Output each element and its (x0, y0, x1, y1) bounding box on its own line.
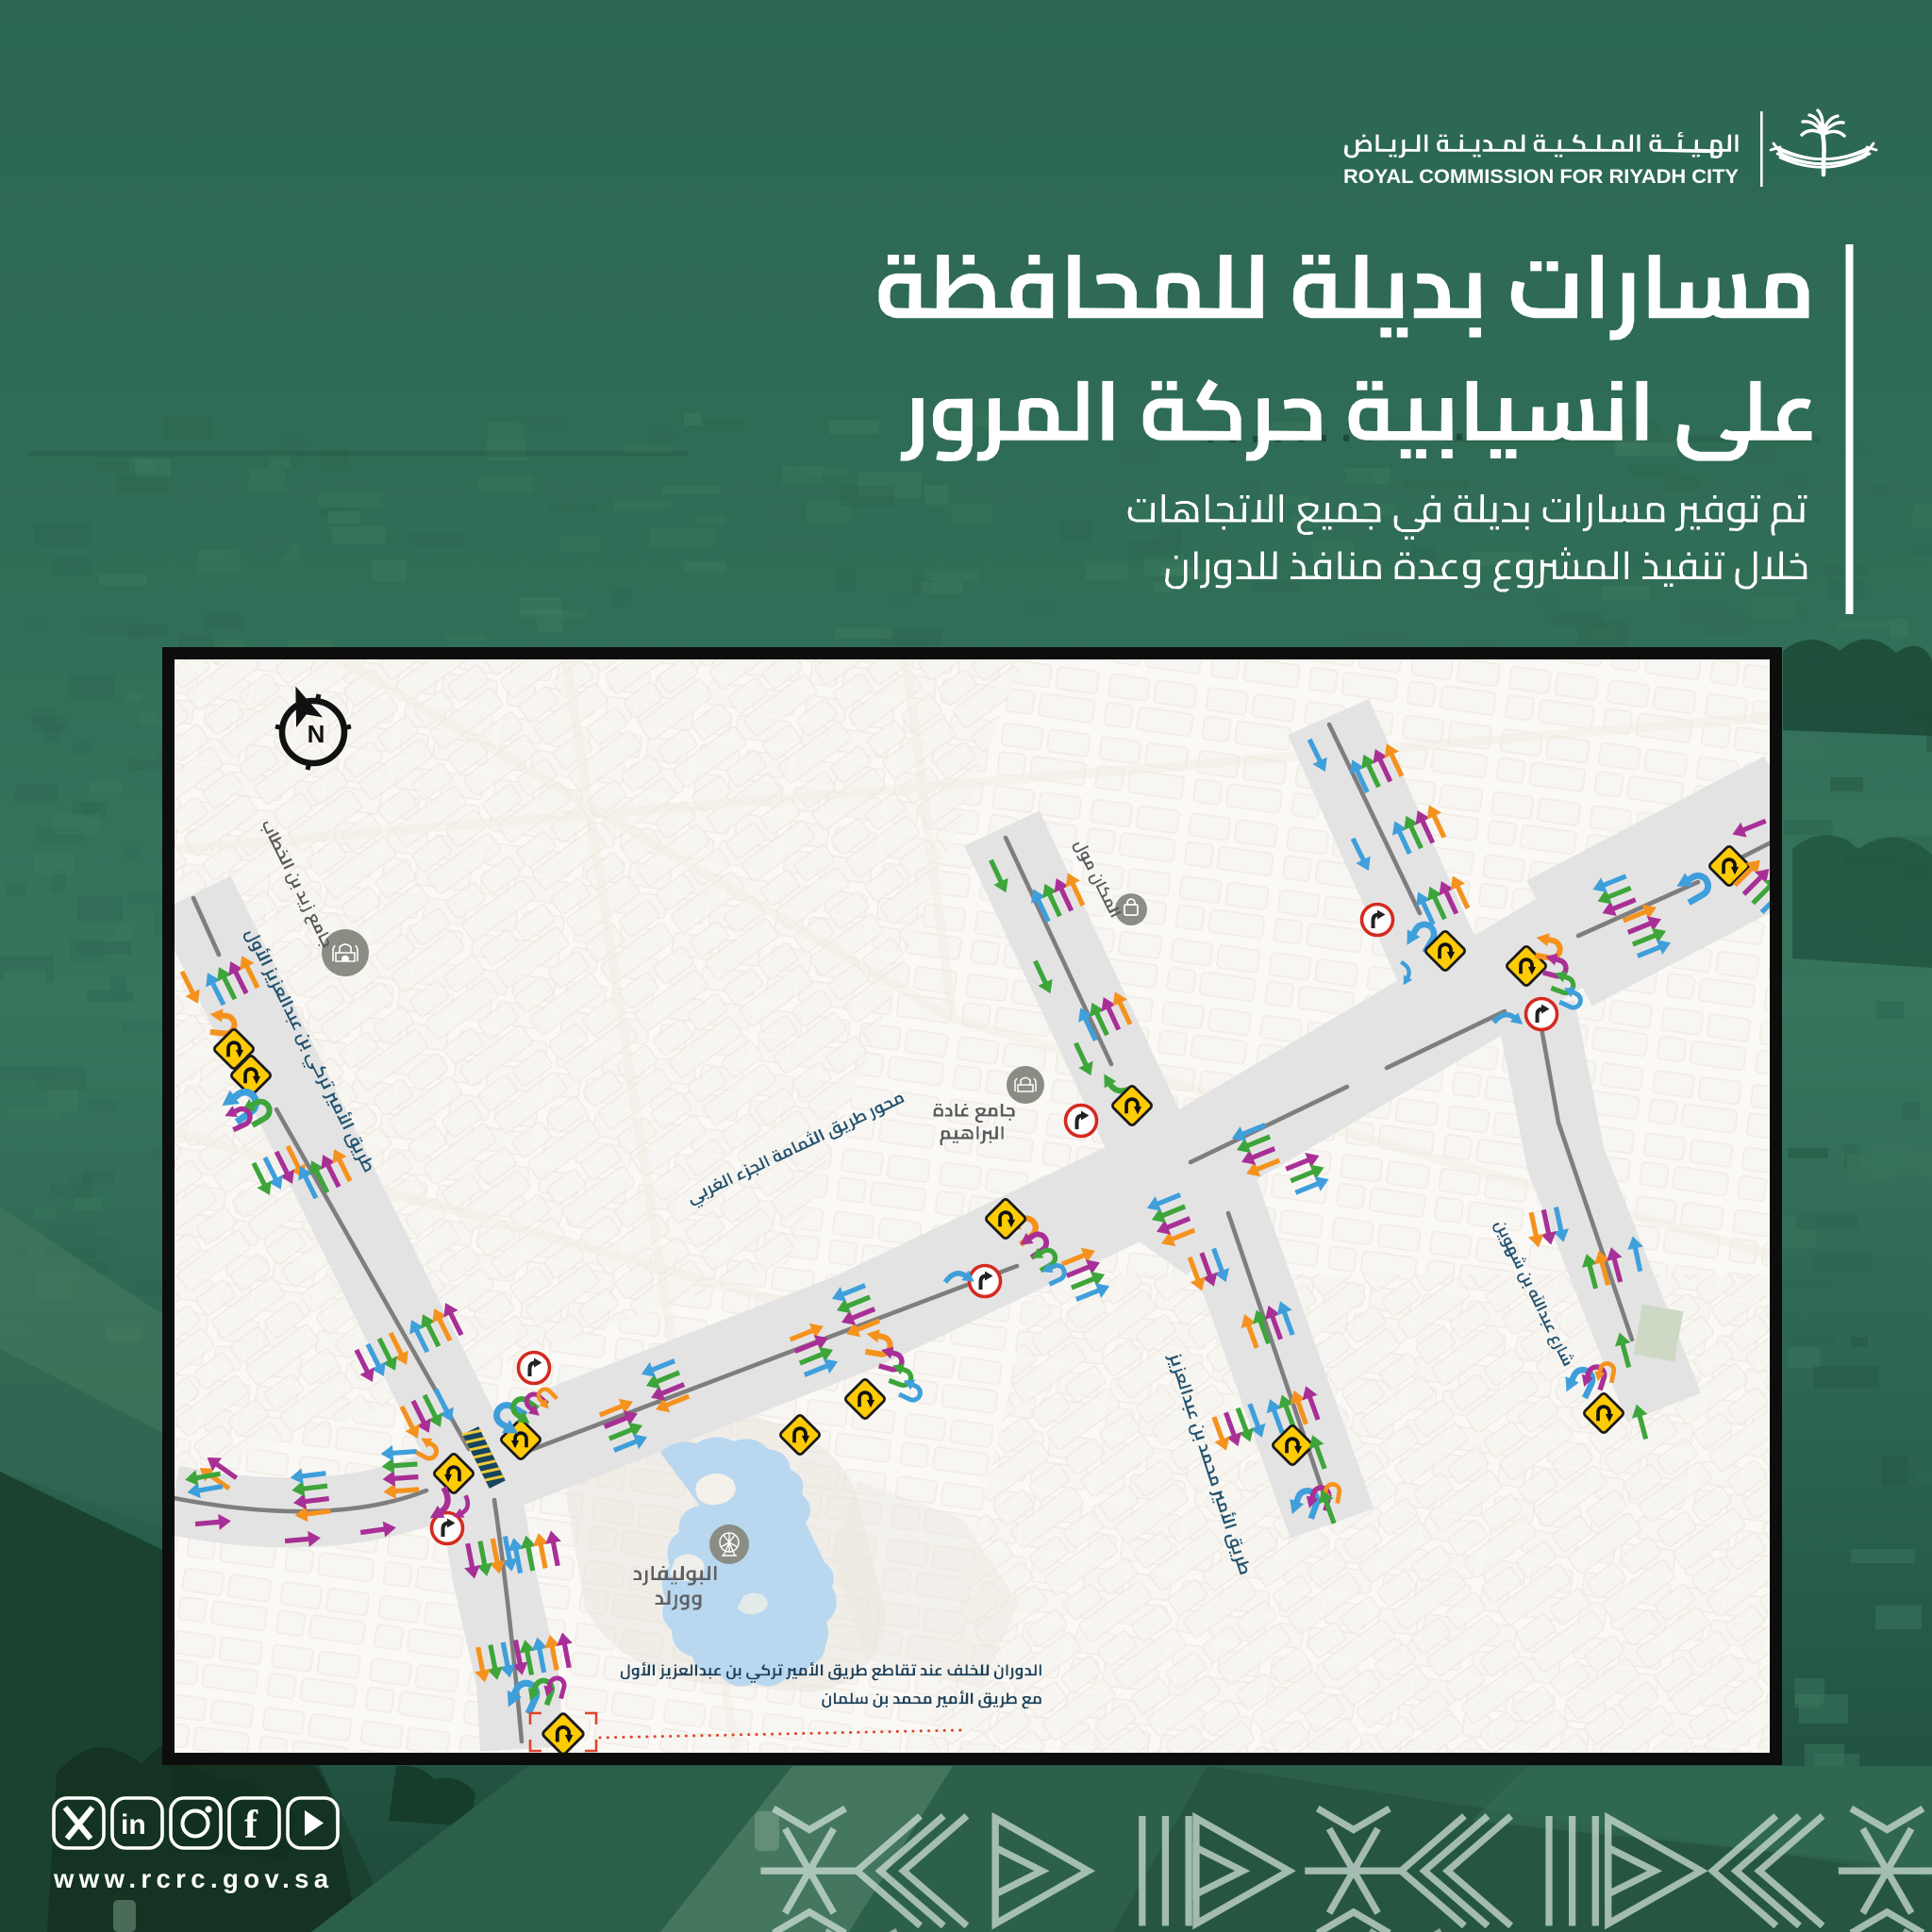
svg-text:www.rcrc.gov.sa: www.rcrc.gov.sa (53, 1864, 334, 1893)
svg-text:ROYAL COMMISSION FOR RIYADH CI: ROYAL COMMISSION FOR RIYADH CITY (1343, 166, 1739, 188)
svg-text:f: f (244, 1804, 258, 1847)
svg-text:in: in (121, 1809, 146, 1840)
svg-text:N: N (308, 720, 325, 748)
